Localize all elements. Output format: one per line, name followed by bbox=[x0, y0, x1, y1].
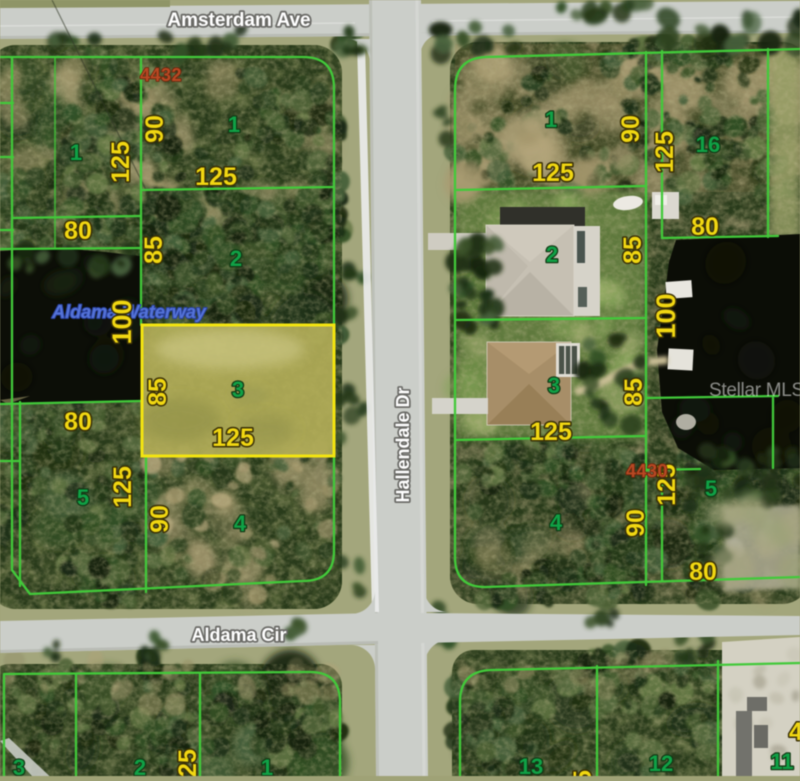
svg-text:125: 125 bbox=[569, 770, 597, 776]
svg-text:125: 125 bbox=[212, 424, 254, 452]
svg-text:11: 11 bbox=[770, 749, 793, 774]
svg-text:125: 125 bbox=[109, 466, 137, 508]
svg-text:2: 2 bbox=[134, 755, 146, 776]
svg-text:125: 125 bbox=[174, 749, 202, 776]
svg-text:Aldama Cir: Aldama Cir bbox=[191, 625, 286, 645]
svg-text:1: 1 bbox=[70, 140, 82, 165]
svg-text:4432: 4432 bbox=[140, 65, 182, 85]
svg-text:2: 2 bbox=[546, 242, 558, 267]
svg-text:80: 80 bbox=[689, 558, 717, 586]
svg-text:2: 2 bbox=[230, 246, 242, 271]
svg-text:4: 4 bbox=[234, 511, 247, 536]
svg-text:3: 3 bbox=[13, 755, 25, 776]
svg-text:90: 90 bbox=[622, 509, 650, 537]
svg-text:85: 85 bbox=[140, 236, 168, 264]
svg-text:125: 125 bbox=[530, 418, 572, 446]
svg-text:1: 1 bbox=[228, 112, 240, 137]
svg-text:90: 90 bbox=[617, 115, 645, 143]
svg-text:80: 80 bbox=[64, 408, 92, 436]
svg-text:100: 100 bbox=[107, 299, 137, 344]
svg-text:3: 3 bbox=[232, 377, 244, 402]
svg-text:16: 16 bbox=[696, 132, 720, 157]
svg-text:4430: 4430 bbox=[626, 461, 668, 481]
svg-text:85: 85 bbox=[144, 378, 172, 406]
svg-text:13: 13 bbox=[519, 754, 543, 776]
svg-text:4: 4 bbox=[550, 510, 563, 535]
svg-text:125: 125 bbox=[651, 131, 679, 173]
svg-text:Hallendale Dr: Hallendale Dr bbox=[393, 387, 413, 502]
svg-text:1: 1 bbox=[545, 107, 557, 132]
svg-text:125: 125 bbox=[107, 141, 135, 183]
svg-text:90: 90 bbox=[141, 115, 169, 143]
svg-text:125: 125 bbox=[532, 159, 574, 187]
svg-text:85: 85 bbox=[619, 236, 647, 264]
svg-text:Amsterdam Ave: Amsterdam Ave bbox=[167, 10, 310, 31]
svg-text:80: 80 bbox=[691, 213, 719, 241]
svg-text:5: 5 bbox=[705, 476, 717, 501]
svg-text:12: 12 bbox=[649, 751, 673, 776]
svg-text:5: 5 bbox=[77, 485, 89, 510]
svg-text:4: 4 bbox=[789, 718, 800, 746]
svg-text:Stellar MLS: Stellar MLS bbox=[709, 380, 800, 401]
svg-text:125: 125 bbox=[195, 163, 237, 191]
svg-text:90: 90 bbox=[146, 505, 174, 533]
svg-text:1: 1 bbox=[261, 755, 273, 776]
svg-text:80: 80 bbox=[64, 217, 92, 245]
svg-text:85: 85 bbox=[620, 378, 648, 406]
svg-text:3: 3 bbox=[548, 373, 560, 398]
svg-text:100: 100 bbox=[651, 293, 681, 338]
